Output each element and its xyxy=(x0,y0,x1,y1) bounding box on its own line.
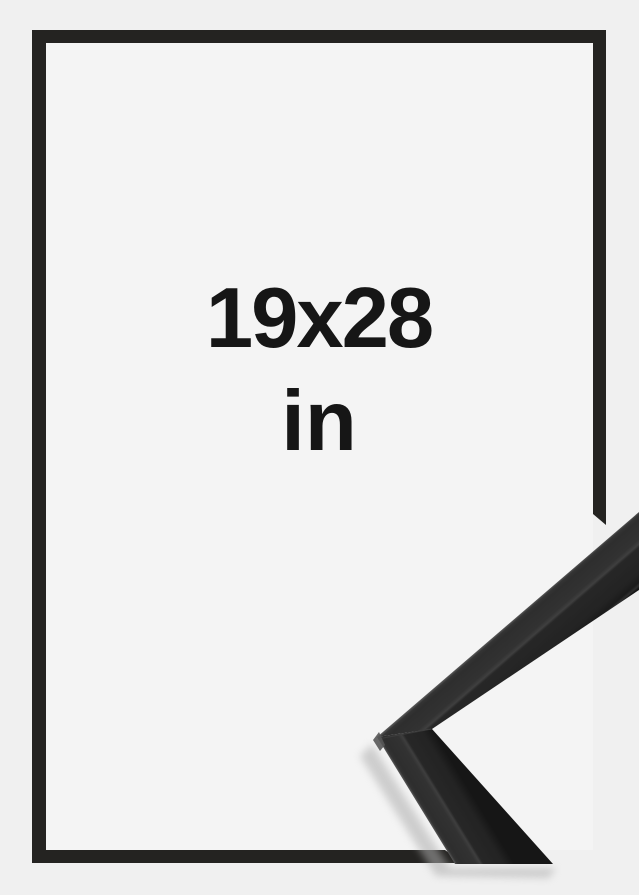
frame-bottom-border xyxy=(32,850,463,863)
frame-right-border xyxy=(593,43,606,525)
frame-size-unit: in xyxy=(45,371,593,474)
frame-size-value: 19x28 xyxy=(45,268,593,371)
frame-product-image: 19x28 in xyxy=(0,0,639,895)
frame-top-border xyxy=(32,30,606,43)
frame-dimension-label: 19x28 in xyxy=(45,268,593,474)
frame-left-border xyxy=(32,30,46,863)
